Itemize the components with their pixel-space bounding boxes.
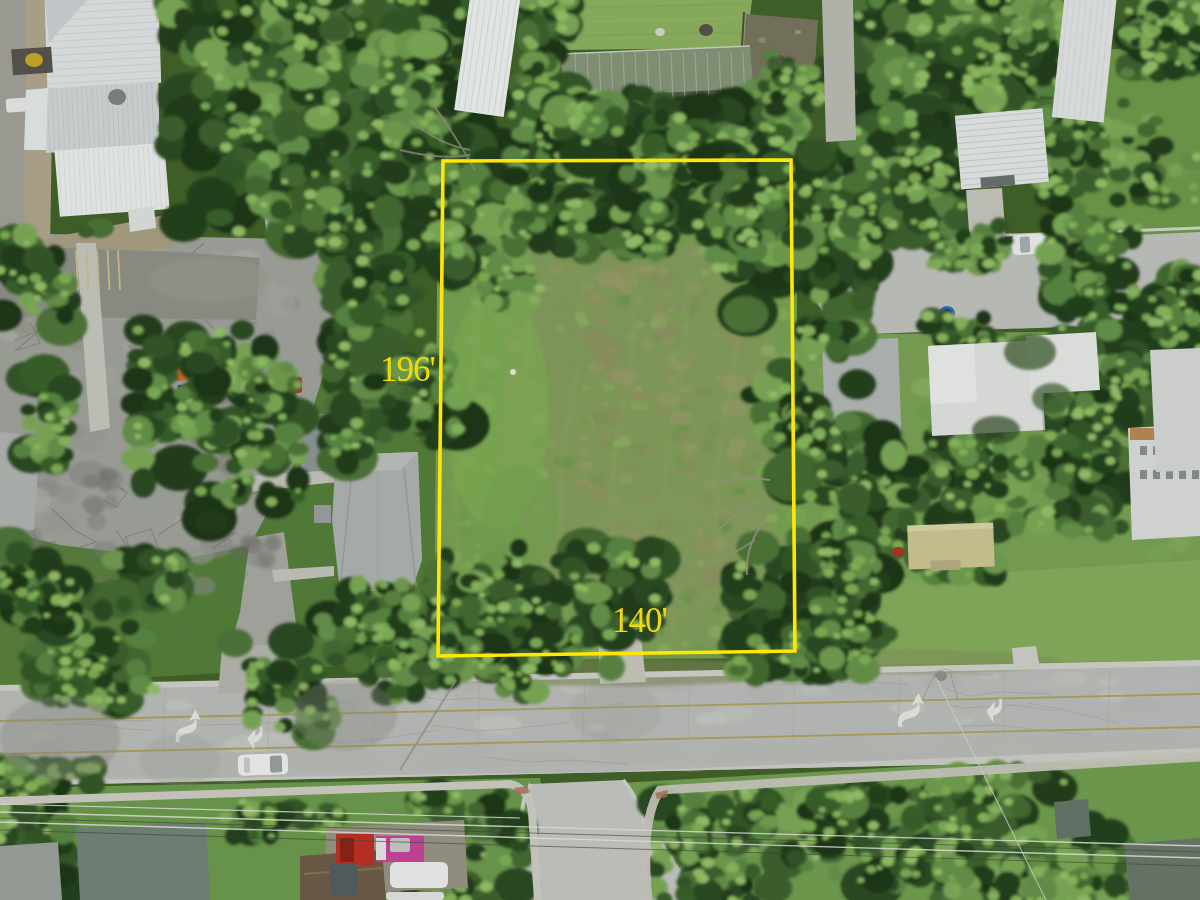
svg-text:140': 140' (612, 601, 667, 640)
svg-text:196': 196' (380, 350, 435, 389)
